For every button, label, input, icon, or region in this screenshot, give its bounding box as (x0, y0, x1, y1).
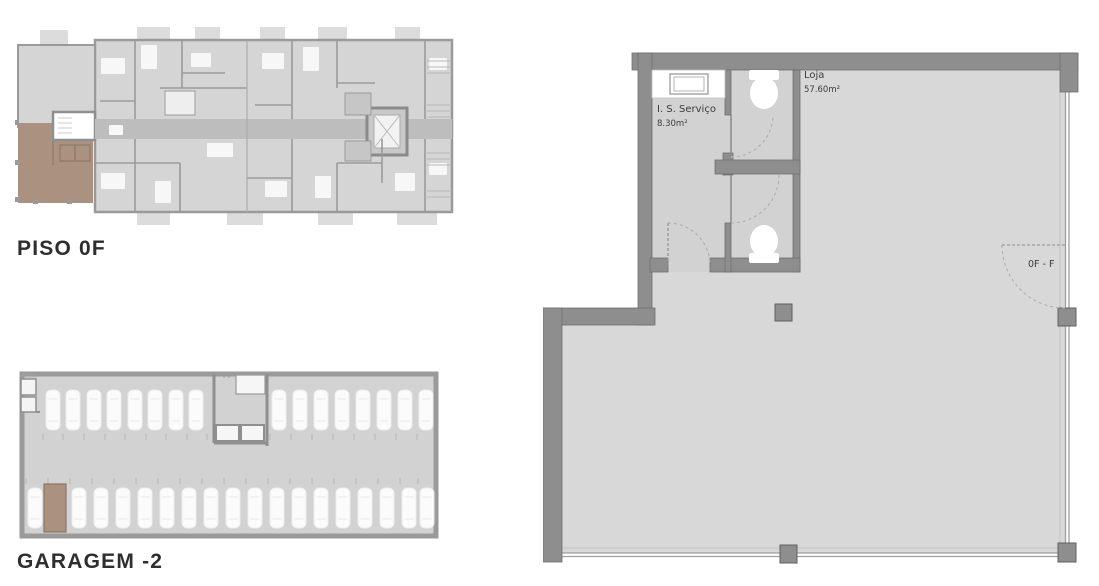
sink-counter (652, 70, 725, 98)
wall-left-lower (543, 308, 562, 562)
piso-0f-drawing (15, 13, 455, 228)
room-area-servico: 8.30m² (657, 119, 688, 129)
garage-plan (17, 366, 441, 544)
wall-stall-left-c (725, 223, 731, 272)
piso-0f-title: PISO 0F (17, 237, 106, 261)
wall-top (632, 53, 1078, 70)
garage-title: GARAGEM -2 (17, 550, 163, 574)
room-area-loja: 57.60m² (804, 85, 840, 95)
column (775, 304, 792, 321)
elevator-icon (236, 375, 265, 394)
wall-service-bottom-stub (650, 258, 668, 272)
floorplan-page: PISO 0F (0, 0, 1099, 586)
wall-corner-block (1060, 53, 1078, 92)
wall-left-upper (638, 53, 652, 325)
toilet-icon (750, 77, 778, 109)
elevator-core (367, 108, 407, 155)
wall-stall-divider (715, 160, 800, 174)
storage-box (241, 425, 264, 441)
room-name-loja: Loja (804, 70, 824, 81)
highlighted-parking-spot (44, 484, 66, 532)
toilet-icon (750, 225, 778, 257)
stair-core (53, 112, 95, 140)
garage-drawing (17, 366, 441, 544)
column (780, 545, 797, 563)
column (1058, 308, 1076, 326)
unit-drawing: Loja 57.60m² I. S. Serviço 8.30m² 0F - F (543, 45, 1079, 565)
entry-door-label: 0F - F (1028, 259, 1054, 270)
key-plan-piso-0f (15, 13, 455, 228)
storage-box (216, 425, 239, 441)
room-name-servico: I. S. Serviço (657, 104, 716, 115)
column (1058, 543, 1076, 562)
unit-detail-plan: Loja 57.60m² I. S. Serviço 8.30m² 0F - F (543, 45, 1079, 565)
wall-stall-left-a (725, 70, 731, 115)
